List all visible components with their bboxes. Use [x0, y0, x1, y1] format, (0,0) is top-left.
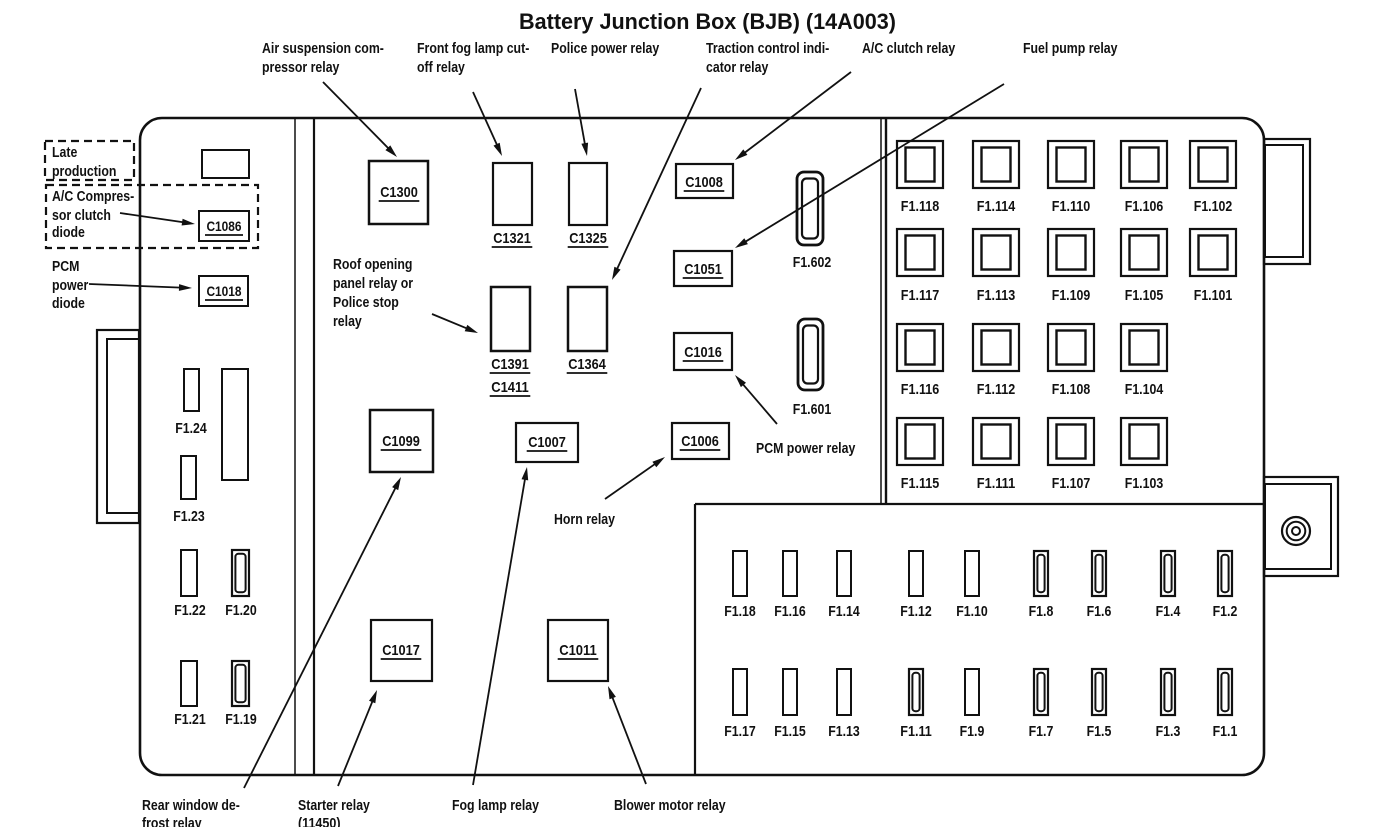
svg-text:F1.7: F1.7	[1029, 724, 1054, 740]
svg-text:F1.22: F1.22	[174, 603, 206, 619]
svg-text:off relay: off relay	[417, 60, 465, 76]
svg-text:Air suspension com-: Air suspension com-	[262, 41, 384, 57]
svg-text:A/C Compres-: A/C Compres-	[52, 189, 134, 205]
svg-text:F1.116: F1.116	[901, 382, 939, 398]
svg-text:F1.24: F1.24	[175, 421, 207, 437]
svg-text:diode: diode	[52, 225, 85, 241]
svg-text:F1.17: F1.17	[724, 724, 756, 740]
svg-text:panel relay or: panel relay or	[333, 276, 413, 292]
svg-text:F1.110: F1.110	[1052, 199, 1090, 215]
svg-text:F1.101: F1.101	[1194, 288, 1232, 304]
svg-text:F1.602: F1.602	[793, 255, 831, 271]
svg-text:F1.14: F1.14	[828, 604, 860, 620]
svg-text:F1.106: F1.106	[1125, 199, 1163, 215]
svg-text:F1.2: F1.2	[1213, 604, 1238, 620]
svg-text:F1.16: F1.16	[774, 604, 806, 620]
svg-text:C1099: C1099	[382, 433, 420, 450]
svg-text:Traction control indi-: Traction control indi-	[706, 41, 829, 57]
svg-text:Battery Junction Box (BJB) (14: Battery Junction Box (BJB) (14A003)	[519, 9, 896, 34]
svg-text:C1325: C1325	[569, 230, 607, 247]
svg-text:(11450): (11450)	[298, 816, 341, 827]
svg-text:C1016: C1016	[684, 344, 722, 361]
svg-text:F1.115: F1.115	[901, 476, 939, 492]
svg-text:Fog lamp relay: Fog lamp relay	[452, 798, 539, 814]
svg-text:C1086: C1086	[206, 218, 241, 234]
svg-text:Blower motor relay: Blower motor relay	[614, 798, 726, 814]
svg-text:C1007: C1007	[528, 434, 566, 451]
svg-text:pressor relay: pressor relay	[262, 60, 339, 76]
svg-text:F1.12: F1.12	[900, 604, 932, 620]
svg-text:C1300: C1300	[380, 184, 418, 201]
svg-text:power: power	[52, 278, 89, 294]
svg-text:Late: Late	[52, 145, 77, 161]
svg-text:C1051: C1051	[684, 261, 722, 278]
svg-text:F1.5: F1.5	[1087, 724, 1112, 740]
svg-text:Roof opening: Roof opening	[333, 257, 412, 273]
svg-text:C1411: C1411	[491, 379, 529, 396]
svg-text:F1.114: F1.114	[977, 199, 1015, 215]
svg-text:C1006: C1006	[681, 433, 719, 450]
svg-text:production: production	[52, 164, 116, 180]
svg-text:F1.1: F1.1	[1213, 724, 1238, 740]
svg-text:C1018: C1018	[206, 283, 241, 299]
svg-text:F1.102: F1.102	[1194, 199, 1232, 215]
svg-text:F1.10: F1.10	[956, 604, 988, 620]
svg-text:C1321: C1321	[493, 230, 531, 247]
svg-text:F1.13: F1.13	[828, 724, 860, 740]
svg-text:Starter relay: Starter relay	[298, 798, 370, 814]
svg-text:relay: relay	[333, 314, 362, 330]
svg-text:C1017: C1017	[382, 642, 420, 659]
svg-text:F1.20: F1.20	[225, 603, 257, 619]
svg-text:C1364: C1364	[568, 356, 606, 373]
svg-text:F1.23: F1.23	[173, 509, 205, 525]
svg-text:A/C clutch relay: A/C clutch relay	[862, 41, 955, 57]
svg-text:F1.111: F1.111	[977, 476, 1015, 492]
svg-text:Police stop: Police stop	[333, 295, 399, 311]
svg-text:C1008: C1008	[685, 174, 723, 191]
svg-text:C1011: C1011	[559, 642, 597, 659]
svg-text:F1.107: F1.107	[1052, 476, 1090, 492]
svg-text:Front fog lamp cut-: Front fog lamp cut-	[417, 41, 529, 57]
svg-text:sor clutch: sor clutch	[52, 208, 111, 224]
svg-text:cator relay: cator relay	[706, 60, 768, 76]
svg-text:F1.8: F1.8	[1029, 604, 1054, 620]
svg-text:F1.3: F1.3	[1156, 724, 1181, 740]
svg-text:F1.6: F1.6	[1087, 604, 1112, 620]
svg-text:F1.117: F1.117	[901, 288, 939, 304]
svg-text:F1.21: F1.21	[174, 712, 206, 728]
svg-text:F1.103: F1.103	[1125, 476, 1163, 492]
svg-text:Rear window de-: Rear window de-	[142, 798, 240, 814]
svg-text:diode: diode	[52, 296, 85, 312]
svg-text:F1.601: F1.601	[793, 402, 831, 418]
svg-text:Horn relay: Horn relay	[554, 512, 615, 528]
svg-text:F1.112: F1.112	[977, 382, 1015, 398]
svg-text:F1.108: F1.108	[1052, 382, 1090, 398]
svg-text:F1.18: F1.18	[724, 604, 756, 620]
svg-text:F1.104: F1.104	[1125, 382, 1163, 398]
svg-text:Fuel pump relay: Fuel pump relay	[1023, 41, 1118, 57]
svg-text:PCM power relay: PCM power relay	[756, 441, 855, 457]
svg-text:F1.11: F1.11	[900, 724, 932, 740]
svg-text:F1.15: F1.15	[774, 724, 806, 740]
svg-text:PCM: PCM	[52, 259, 79, 275]
svg-text:frost relay: frost relay	[142, 816, 202, 827]
svg-text:F1.19: F1.19	[225, 712, 257, 728]
svg-text:F1.109: F1.109	[1052, 288, 1090, 304]
svg-text:F1.113: F1.113	[977, 288, 1015, 304]
svg-text:F1.118: F1.118	[901, 199, 939, 215]
svg-text:C1391: C1391	[491, 356, 529, 373]
svg-text:F1.4: F1.4	[1156, 604, 1181, 620]
svg-text:Police power relay: Police power relay	[551, 41, 659, 57]
svg-text:F1.105: F1.105	[1125, 288, 1163, 304]
svg-text:F1.9: F1.9	[960, 724, 985, 740]
